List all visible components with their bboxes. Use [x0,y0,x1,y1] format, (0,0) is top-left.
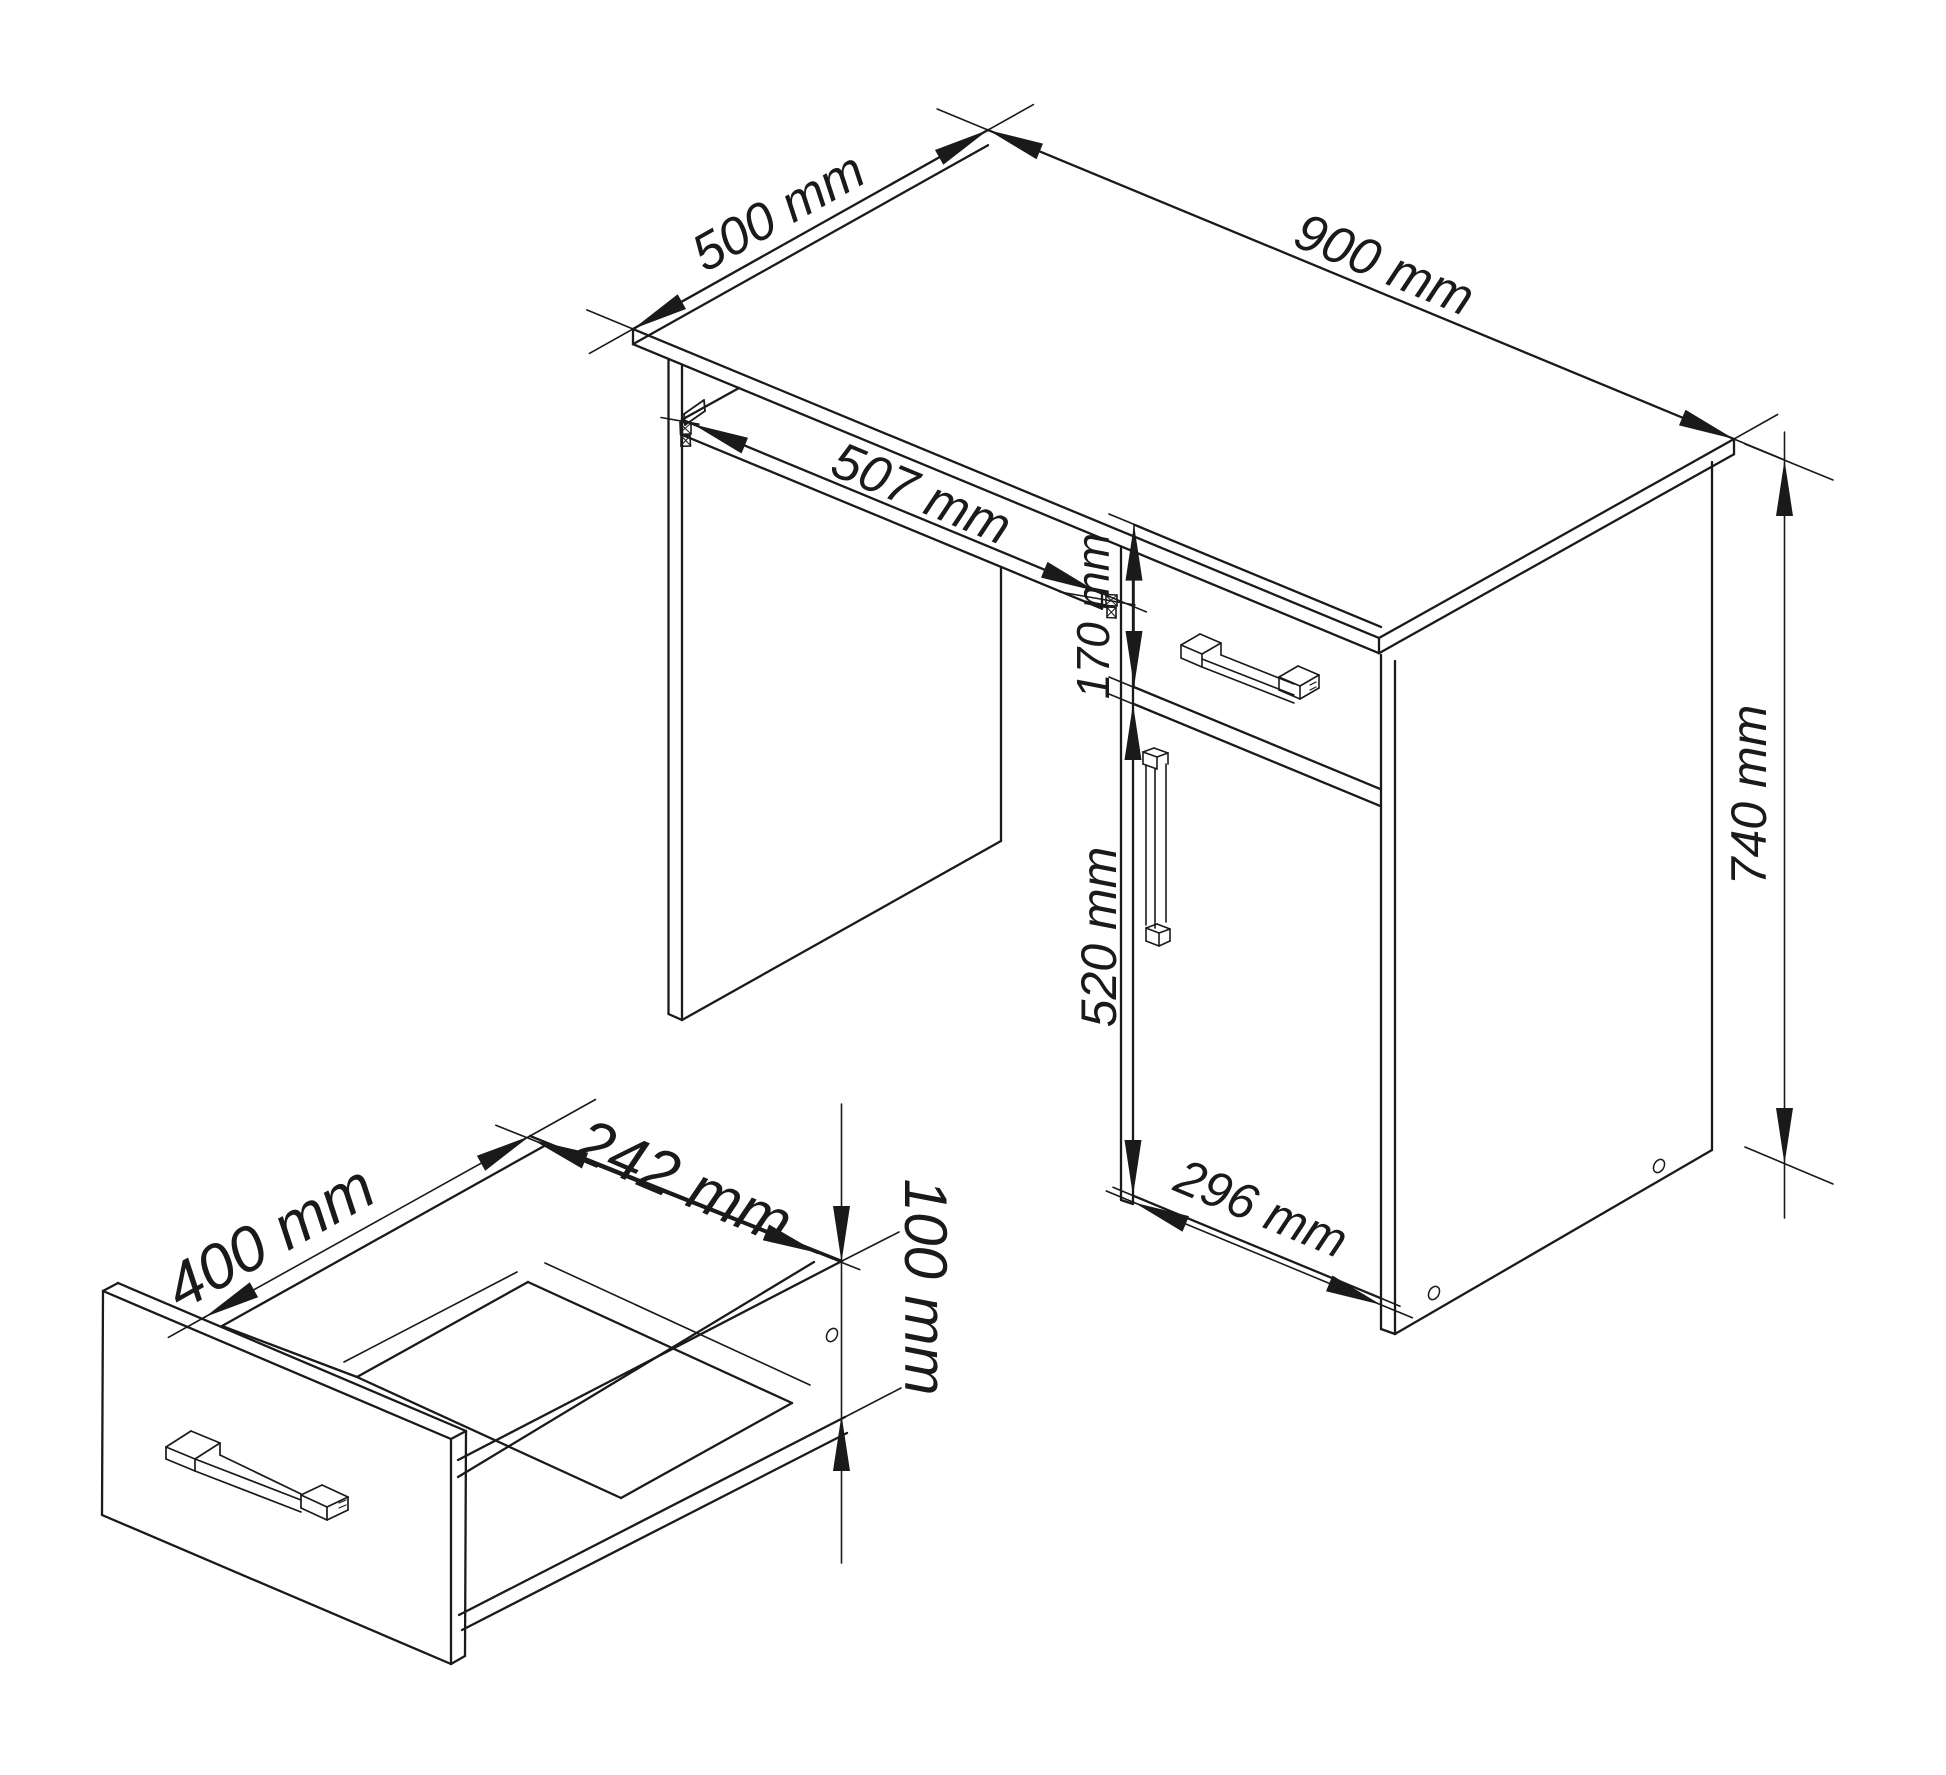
svg-text:170 mm: 170 mm [1067,533,1119,699]
svg-text:740 mm: 740 mm [1721,705,1777,886]
svg-text:100 mm: 100 mm [892,1179,959,1396]
svg-text:520 mm: 520 mm [1071,847,1127,1028]
